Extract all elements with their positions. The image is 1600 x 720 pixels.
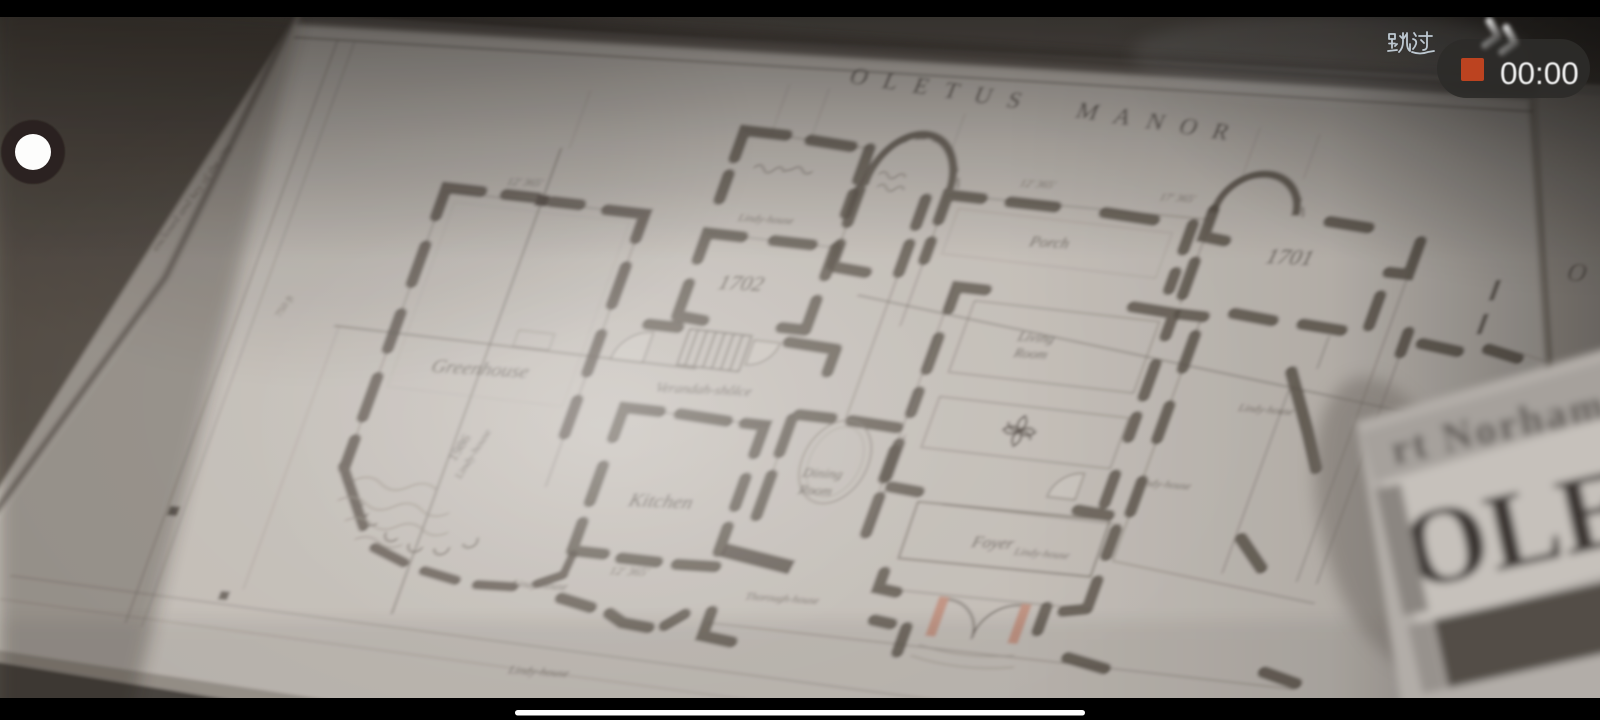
svg-text:00:00: 00:00 <box>1500 55 1579 91</box>
